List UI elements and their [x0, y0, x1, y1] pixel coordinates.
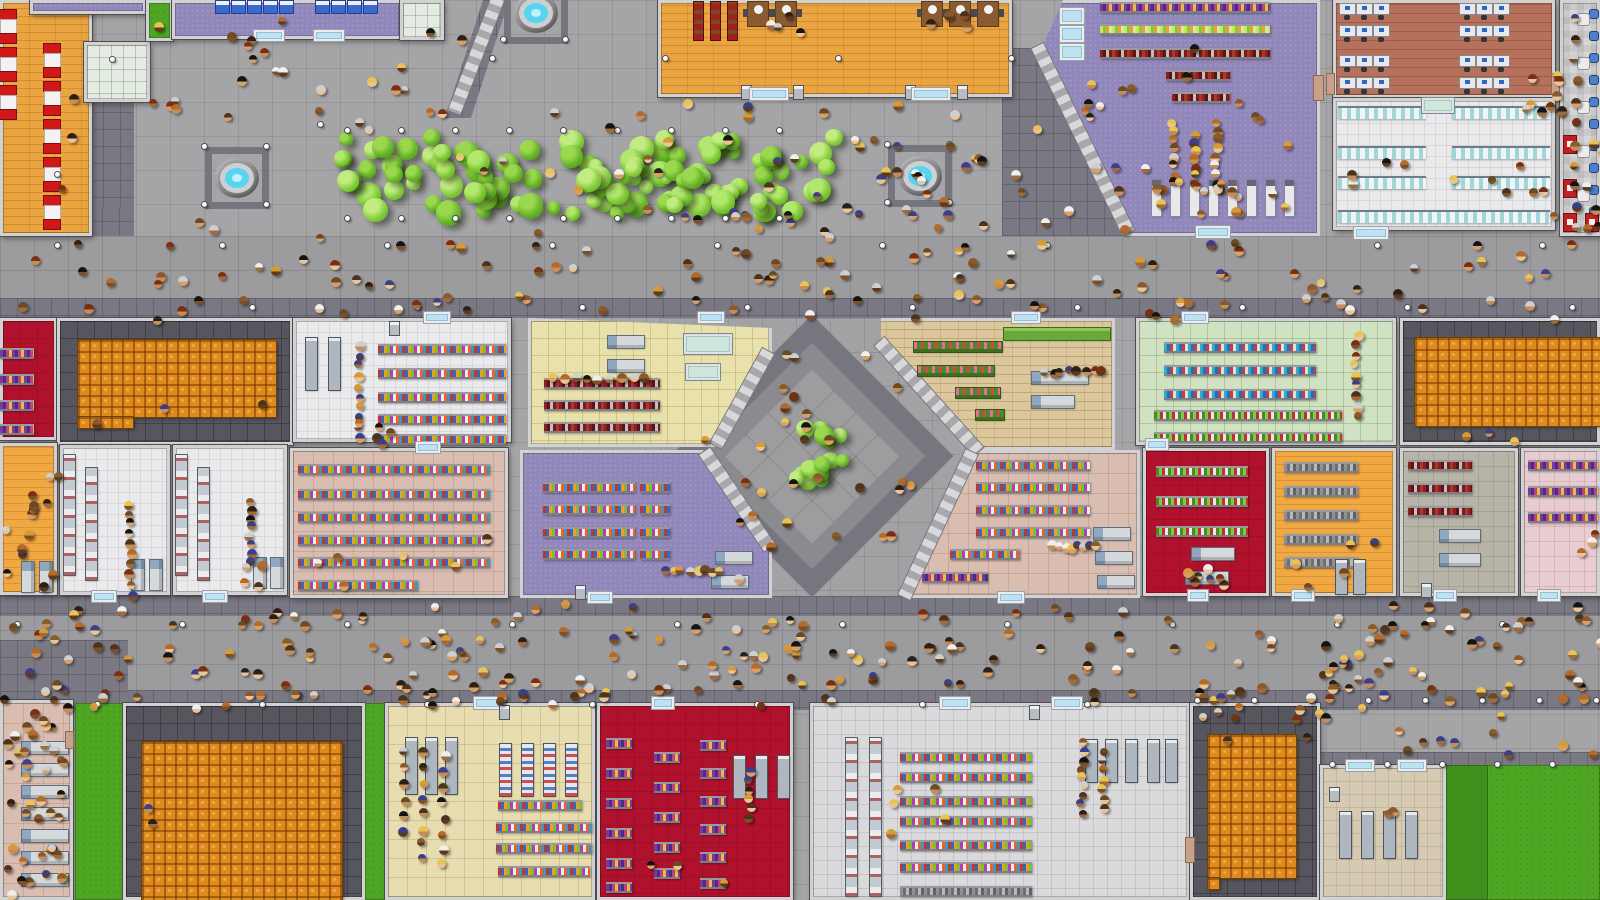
person[interactable] [994, 279, 1004, 289]
person[interactable] [913, 294, 921, 302]
person[interactable] [241, 668, 249, 676]
person[interactable] [946, 142, 955, 151]
person[interactable] [630, 373, 639, 382]
person[interactable] [1436, 736, 1445, 745]
person[interactable] [1128, 689, 1136, 697]
person[interactable] [1214, 708, 1222, 716]
person[interactable] [731, 212, 740, 221]
person[interactable] [513, 612, 522, 621]
person[interactable] [1567, 240, 1576, 249]
person[interactable] [42, 870, 50, 878]
person[interactable] [764, 182, 774, 192]
person[interactable] [647, 861, 655, 869]
person[interactable] [956, 274, 964, 282]
person[interactable] [825, 233, 834, 242]
person[interactable] [54, 472, 63, 481]
person[interactable] [570, 692, 579, 701]
person[interactable] [365, 126, 373, 134]
person[interactable] [1477, 257, 1486, 266]
person[interactable] [1370, 538, 1379, 547]
glass-door[interactable] [256, 32, 282, 39]
person[interactable] [754, 274, 763, 283]
glass-door[interactable] [316, 32, 342, 39]
building-lawn-right-dark[interactable] [1446, 765, 1488, 900]
person[interactable] [355, 118, 364, 127]
person[interactable] [36, 796, 46, 806]
person[interactable] [655, 636, 663, 644]
glass-door[interactable] [1198, 228, 1228, 236]
glass-door[interactable] [914, 90, 948, 98]
person[interactable] [240, 578, 249, 587]
person[interactable] [1570, 162, 1578, 170]
person[interactable] [1476, 687, 1486, 697]
person[interactable] [438, 783, 448, 793]
person[interactable] [1572, 118, 1581, 127]
person[interactable] [74, 240, 82, 248]
person[interactable] [431, 603, 439, 611]
person[interactable] [254, 621, 263, 630]
person[interactable] [227, 32, 237, 42]
person[interactable] [790, 154, 799, 163]
glass-door[interactable] [1062, 46, 1082, 58]
person[interactable] [872, 283, 881, 292]
person[interactable] [291, 690, 300, 699]
person[interactable] [316, 234, 324, 242]
glass-door[interactable] [590, 594, 610, 601]
person[interactable] [1217, 180, 1225, 188]
person[interactable] [918, 609, 928, 619]
person[interactable] [359, 612, 367, 620]
person[interactable] [950, 110, 960, 120]
person[interactable] [39, 628, 48, 637]
glass-door[interactable] [1190, 592, 1206, 599]
person[interactable] [401, 797, 410, 806]
person[interactable] [448, 670, 458, 680]
person[interactable] [1080, 781, 1088, 789]
person[interactable] [1189, 154, 1199, 164]
person[interactable] [457, 35, 467, 45]
person[interactable] [748, 511, 757, 520]
person[interactable] [260, 48, 269, 57]
person[interactable] [1199, 679, 1209, 689]
person[interactable] [878, 658, 886, 666]
person[interactable] [397, 63, 406, 72]
person[interactable] [824, 435, 834, 445]
person[interactable] [124, 655, 132, 663]
glass-door[interactable] [1054, 699, 1080, 707]
person[interactable] [1418, 672, 1426, 680]
person[interactable] [1354, 412, 1362, 420]
person[interactable] [842, 203, 852, 213]
person[interactable] [1040, 368, 1048, 376]
person[interactable] [847, 649, 855, 657]
person[interactable] [790, 353, 799, 362]
person[interactable] [355, 341, 365, 351]
building-white-shop-d[interactable] [173, 445, 287, 595]
person[interactable] [757, 702, 765, 710]
person[interactable] [1183, 568, 1193, 578]
person[interactable] [192, 704, 201, 713]
person[interactable] [1135, 257, 1145, 267]
person[interactable] [1497, 712, 1505, 720]
person[interactable] [333, 553, 342, 562]
person[interactable] [773, 157, 782, 166]
person[interactable] [1501, 690, 1509, 698]
person[interactable] [869, 672, 877, 680]
person[interactable] [755, 225, 763, 233]
person[interactable] [433, 298, 441, 306]
person[interactable] [1513, 622, 1523, 632]
person[interactable] [908, 211, 917, 220]
person[interactable] [1079, 810, 1087, 818]
person[interactable] [278, 67, 288, 77]
glass-door[interactable] [700, 314, 722, 321]
person[interactable] [1231, 714, 1239, 722]
person[interactable] [1514, 655, 1523, 664]
person[interactable] [805, 310, 815, 320]
glass-door[interactable] [1014, 314, 1038, 321]
person[interactable] [419, 763, 427, 771]
person[interactable] [463, 306, 471, 314]
person[interactable] [299, 255, 308, 264]
person[interactable] [154, 22, 164, 32]
person[interactable] [1148, 260, 1157, 269]
person[interactable] [148, 819, 157, 828]
person[interactable] [1427, 685, 1436, 694]
person[interactable] [1182, 72, 1192, 82]
person[interactable] [653, 286, 663, 296]
glass-door[interactable] [1436, 592, 1454, 599]
person[interactable] [1004, 629, 1013, 638]
person[interactable] [1111, 163, 1120, 172]
person[interactable] [17, 544, 27, 554]
person[interactable] [451, 562, 460, 571]
person[interactable] [743, 102, 753, 112]
person[interactable] [781, 418, 789, 426]
person[interactable] [643, 205, 652, 214]
person[interactable] [446, 240, 455, 249]
person[interactable] [702, 613, 711, 622]
person[interactable] [1091, 163, 1101, 173]
person[interactable] [1216, 269, 1225, 278]
person[interactable] [31, 256, 40, 265]
person[interactable] [1170, 644, 1179, 653]
person[interactable] [28, 730, 38, 740]
person[interactable] [1570, 181, 1579, 190]
person[interactable] [531, 678, 540, 687]
person[interactable] [1087, 80, 1096, 89]
person[interactable] [947, 644, 957, 654]
glass-door[interactable] [654, 699, 672, 707]
person[interactable] [1304, 583, 1312, 591]
person[interactable] [1290, 269, 1299, 278]
person[interactable] [582, 246, 591, 255]
person[interactable] [1041, 218, 1050, 227]
person[interactable] [290, 612, 298, 620]
service-door[interactable] [1327, 74, 1334, 94]
building-purple-sliver[interactable] [30, 0, 146, 14]
glass-door[interactable] [1294, 592, 1312, 599]
person[interactable] [438, 831, 446, 839]
person[interactable] [1403, 746, 1412, 755]
person[interactable] [400, 86, 408, 94]
person[interactable] [627, 670, 636, 679]
glass-door[interactable] [1356, 229, 1386, 237]
glass-door[interactable] [94, 593, 114, 600]
person[interactable] [153, 316, 162, 325]
person[interactable] [1083, 661, 1092, 670]
person[interactable] [800, 435, 809, 444]
service-door[interactable] [66, 732, 73, 748]
person[interactable] [1419, 738, 1427, 746]
person[interactable] [356, 402, 364, 410]
person[interactable] [64, 655, 73, 664]
person[interactable] [550, 108, 559, 117]
person[interactable] [893, 383, 902, 392]
person[interactable] [418, 826, 428, 836]
person[interactable] [310, 691, 318, 699]
person[interactable] [1307, 284, 1317, 294]
person[interactable] [548, 373, 557, 382]
person[interactable] [171, 104, 181, 114]
person[interactable] [482, 534, 492, 544]
person[interactable] [881, 167, 891, 177]
person[interactable] [1325, 694, 1334, 703]
person[interactable] [584, 683, 594, 693]
person[interactable] [1090, 697, 1099, 706]
person[interactable] [855, 210, 863, 218]
person[interactable] [10, 731, 20, 741]
person[interactable] [1281, 203, 1289, 211]
person[interactable] [441, 635, 451, 645]
person[interactable] [1100, 795, 1109, 804]
person[interactable] [1368, 624, 1377, 633]
person[interactable] [31, 648, 41, 658]
person[interactable] [923, 248, 931, 256]
person[interactable] [386, 428, 395, 437]
person[interactable] [1546, 102, 1555, 111]
person[interactable] [1006, 279, 1015, 288]
person[interactable] [426, 108, 434, 116]
person[interactable] [237, 76, 247, 86]
person[interactable] [1100, 748, 1108, 756]
person[interactable] [7, 890, 17, 900]
person[interactable] [194, 296, 203, 305]
person[interactable] [491, 618, 499, 626]
person[interactable] [55, 813, 63, 821]
glass-door[interactable] [752, 90, 786, 98]
person[interactable] [784, 211, 792, 219]
person[interactable] [278, 17, 286, 25]
person[interactable] [1502, 188, 1511, 197]
person[interactable] [249, 55, 257, 63]
person[interactable] [741, 249, 751, 259]
person[interactable] [1558, 741, 1568, 751]
person[interactable] [133, 693, 141, 701]
person[interactable] [43, 499, 51, 507]
person[interactable] [886, 829, 896, 839]
person[interactable] [258, 400, 267, 409]
person[interactable] [1190, 44, 1199, 53]
person[interactable] [1213, 133, 1223, 143]
person[interactable] [339, 581, 349, 591]
person[interactable] [943, 210, 953, 220]
person[interactable] [52, 680, 62, 690]
person[interactable] [1170, 143, 1179, 152]
person[interactable] [782, 518, 792, 528]
person[interactable] [983, 667, 993, 677]
person[interactable] [1571, 98, 1581, 108]
person[interactable] [961, 162, 971, 172]
person[interactable] [242, 563, 250, 571]
glass-door[interactable] [1540, 592, 1558, 599]
person[interactable] [1012, 609, 1020, 617]
person[interactable] [1037, 240, 1047, 250]
person[interactable] [1589, 750, 1598, 759]
person[interactable] [911, 314, 920, 323]
glass-door[interactable] [1062, 10, 1082, 22]
person[interactable] [1321, 713, 1331, 723]
person[interactable] [469, 682, 479, 692]
person[interactable] [1118, 607, 1128, 617]
person[interactable] [57, 790, 65, 798]
person[interactable] [222, 702, 230, 710]
person[interactable] [1596, 638, 1600, 648]
person[interactable] [209, 225, 219, 235]
building-green-court[interactable] [146, 0, 173, 41]
glass-door[interactable] [1062, 28, 1082, 40]
person[interactable] [367, 77, 377, 87]
person[interactable] [22, 759, 32, 769]
person[interactable] [1449, 175, 1458, 184]
person[interactable] [28, 491, 37, 500]
person[interactable] [117, 606, 127, 616]
person[interactable] [244, 42, 252, 50]
person[interactable] [1395, 727, 1403, 735]
person[interactable] [1235, 99, 1243, 107]
person[interactable] [813, 473, 823, 483]
person[interactable] [787, 674, 795, 682]
person[interactable] [1383, 657, 1393, 667]
person[interactable] [545, 168, 555, 178]
person[interactable] [39, 716, 48, 725]
person[interactable] [605, 123, 615, 133]
person[interactable] [1089, 688, 1099, 698]
building-lawn-mid[interactable] [365, 703, 385, 900]
person[interactable] [1112, 665, 1121, 674]
person[interactable] [813, 192, 821, 200]
person[interactable] [569, 264, 577, 272]
person[interactable] [1141, 164, 1150, 173]
person[interactable] [977, 156, 987, 166]
person[interactable] [42, 766, 50, 774]
person[interactable] [1080, 747, 1089, 756]
person[interactable] [1488, 176, 1496, 184]
person[interactable] [356, 394, 364, 402]
person[interactable] [315, 107, 323, 115]
person[interactable] [1384, 810, 1392, 818]
person[interactable] [961, 243, 969, 251]
person[interactable] [1227, 690, 1235, 698]
person[interactable] [1410, 264, 1418, 272]
game-map[interactable] [0, 0, 1600, 900]
glass-door[interactable] [418, 444, 438, 451]
person[interactable] [375, 423, 383, 431]
person[interactable] [1400, 160, 1409, 169]
person[interactable] [1594, 222, 1600, 230]
person[interactable] [1234, 246, 1244, 256]
building-atrium[interactable] [84, 42, 150, 102]
person[interactable] [1302, 294, 1311, 303]
person[interactable] [741, 212, 751, 222]
person[interactable] [766, 542, 776, 552]
person[interactable] [836, 676, 844, 684]
person[interactable] [255, 263, 263, 271]
person[interactable] [960, 11, 969, 20]
person[interactable] [1211, 169, 1220, 178]
building-atrium-2[interactable] [400, 0, 444, 40]
person[interactable] [886, 531, 896, 541]
glass-door[interactable] [942, 699, 968, 707]
person[interactable] [1573, 76, 1583, 86]
person[interactable] [907, 656, 917, 666]
person[interactable] [1583, 224, 1592, 233]
person[interactable] [934, 224, 942, 232]
person[interactable] [574, 186, 583, 195]
person[interactable] [110, 644, 119, 653]
building-vending-room[interactable] [1320, 765, 1446, 900]
person[interactable] [779, 384, 788, 393]
person[interactable] [744, 814, 753, 823]
person[interactable] [1488, 693, 1498, 703]
person[interactable] [639, 373, 649, 383]
glass-door[interactable] [426, 314, 448, 321]
person[interactable] [548, 700, 557, 709]
person[interactable] [1306, 693, 1316, 703]
person[interactable] [789, 392, 799, 402]
person[interactable] [681, 213, 689, 221]
person[interactable] [1340, 655, 1348, 663]
person[interactable] [819, 108, 829, 118]
person[interactable] [939, 615, 949, 625]
person[interactable] [1347, 170, 1357, 180]
person[interactable] [743, 112, 753, 122]
person[interactable] [1493, 642, 1501, 650]
person[interactable] [944, 11, 954, 21]
person[interactable] [625, 627, 633, 635]
person[interactable] [38, 852, 46, 860]
person[interactable] [1541, 269, 1550, 278]
person[interactable] [314, 559, 322, 567]
person[interactable] [654, 685, 664, 695]
person[interactable] [870, 136, 878, 144]
person[interactable] [504, 673, 514, 683]
person[interactable] [46, 473, 54, 481]
person[interactable] [609, 634, 619, 644]
person[interactable] [1525, 301, 1535, 311]
person[interactable] [253, 669, 263, 679]
person[interactable] [1084, 99, 1093, 108]
person[interactable] [935, 654, 944, 663]
person[interactable] [930, 784, 940, 794]
person[interactable] [1462, 432, 1471, 441]
person[interactable] [885, 641, 895, 651]
person[interactable] [1234, 659, 1242, 667]
person[interactable] [257, 561, 267, 571]
person[interactable] [1257, 683, 1267, 693]
person[interactable] [149, 99, 157, 107]
person[interactable] [1582, 182, 1591, 191]
